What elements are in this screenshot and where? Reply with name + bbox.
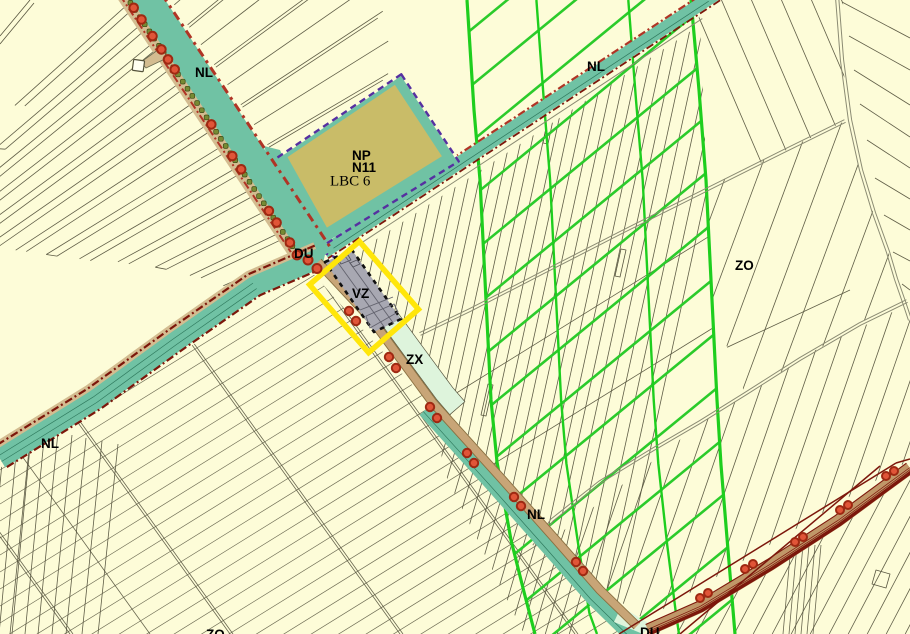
svg-text:VZ: VZ	[352, 286, 369, 301]
svg-text:DU: DU	[294, 246, 314, 261]
svg-text:NL: NL	[195, 65, 213, 80]
svg-text:NL: NL	[41, 436, 59, 451]
svg-text:LBC 6: LBC 6	[330, 174, 371, 190]
svg-text:ZO: ZO	[735, 258, 754, 273]
svg-text:NL: NL	[527, 507, 545, 522]
svg-text:ZO: ZO	[206, 627, 225, 634]
svg-text:DU: DU	[640, 625, 660, 634]
svg-text:NL: NL	[587, 59, 605, 74]
svg-text:ZX: ZX	[406, 352, 423, 367]
